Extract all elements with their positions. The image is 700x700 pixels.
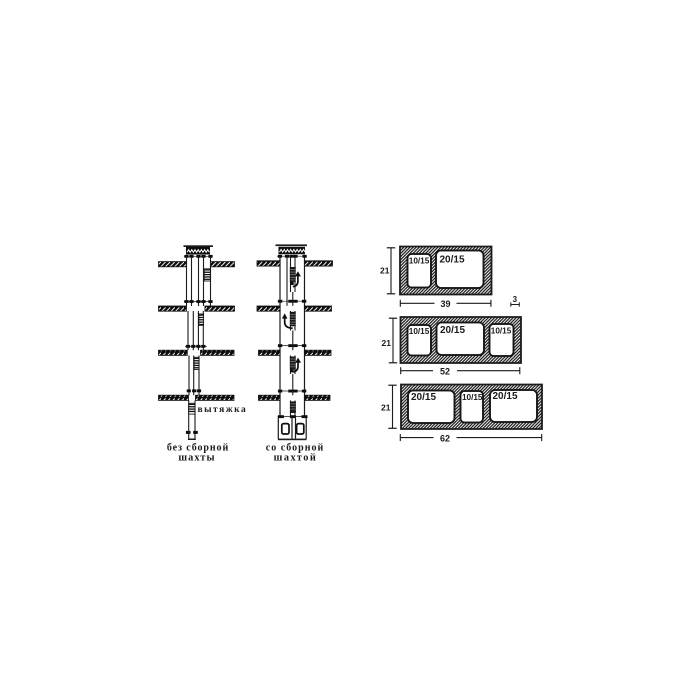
svg-text:10/15: 10/15 <box>462 393 483 402</box>
svg-text:10/15: 10/15 <box>409 256 430 265</box>
svg-text:21: 21 <box>381 402 391 412</box>
svg-text:20/15: 20/15 <box>440 255 465 266</box>
svg-text:шахты: шахты <box>178 452 215 463</box>
svg-text:21: 21 <box>382 338 392 348</box>
svg-text:62: 62 <box>440 433 450 443</box>
svg-text:52: 52 <box>440 367 450 377</box>
svg-text:10/15: 10/15 <box>409 327 430 336</box>
svg-text:20/15: 20/15 <box>440 325 465 336</box>
svg-text:20/15: 20/15 <box>493 391 518 402</box>
svg-text:10/15: 10/15 <box>491 326 512 335</box>
svg-text:21: 21 <box>380 265 390 275</box>
svg-text:20/15: 20/15 <box>411 392 436 403</box>
svg-text:вытяжка: вытяжка <box>198 405 248 415</box>
svg-text:39: 39 <box>440 299 450 309</box>
svg-text:шахтой: шахтой <box>274 453 318 464</box>
svg-text:3: 3 <box>513 295 518 304</box>
